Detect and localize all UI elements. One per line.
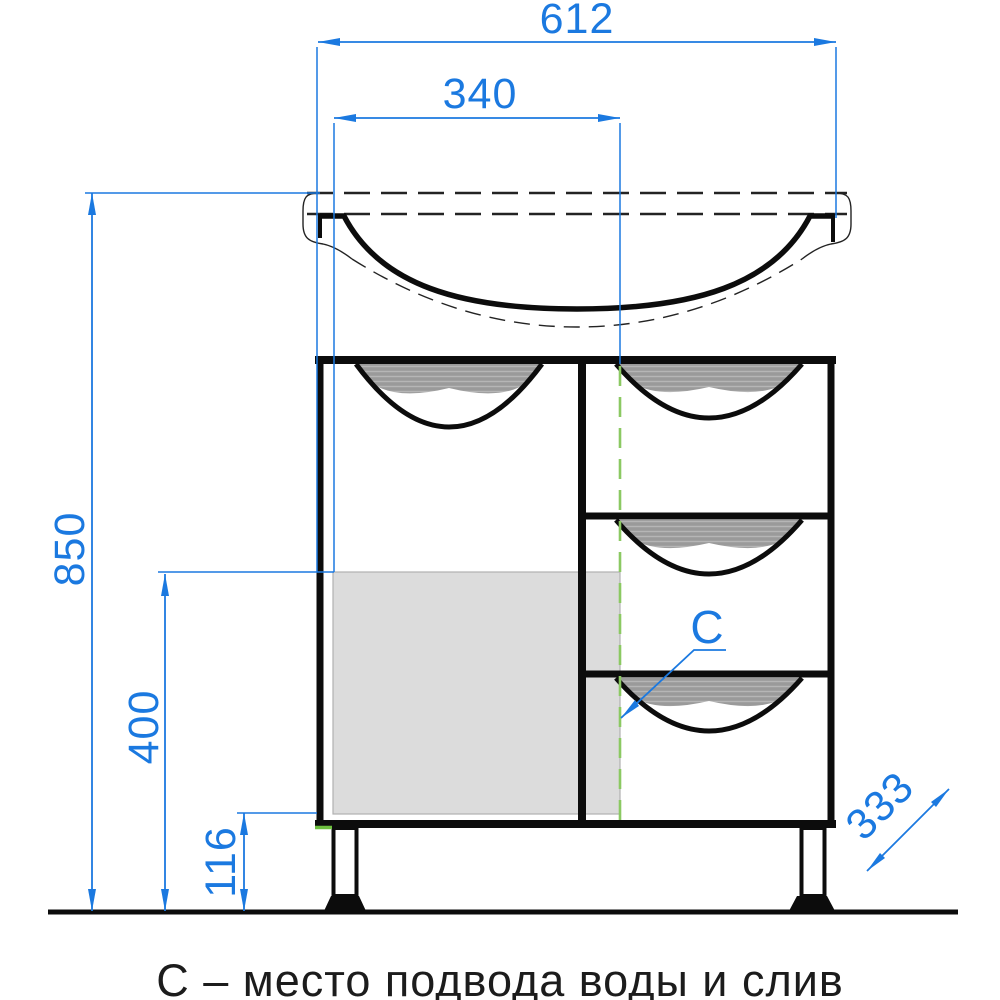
vanity-dimension-drawing: 612 340 850 400 116 333 С С – место подв… [0, 0, 1000, 1000]
dim-400-text: 400 [120, 690, 168, 765]
right-foot [789, 896, 835, 911]
sink-bowl-outline [320, 216, 834, 309]
service-zone-panel [333, 572, 620, 814]
dim-333-text: 333 [837, 763, 924, 850]
left-foot [324, 896, 366, 911]
dim-340-text: 340 [443, 70, 518, 118]
connection-point-label: С [690, 601, 723, 653]
drawer-1-handle [616, 364, 802, 418]
sink-rim-right [802, 193, 851, 259]
sink-bowl-hidden-curve [352, 259, 802, 327]
drawing-canvas: 612 340 850 400 116 333 С С – место подв… [0, 0, 1000, 1000]
drawer-3-handle [616, 678, 802, 731]
drawing-caption: С – место подвода воды и слив [156, 955, 844, 1000]
legs-and-ground [48, 828, 958, 912]
left-leg [334, 828, 357, 896]
door-handle [356, 364, 542, 427]
dim-850-text: 850 [46, 512, 94, 587]
sink-rim-left [303, 193, 352, 259]
dim-116-text: 116 [197, 826, 245, 898]
dim-612-text: 612 [540, 0, 615, 43]
drawer-2-handle [616, 520, 802, 574]
right-leg [802, 828, 825, 896]
sink-basin [303, 193, 851, 327]
